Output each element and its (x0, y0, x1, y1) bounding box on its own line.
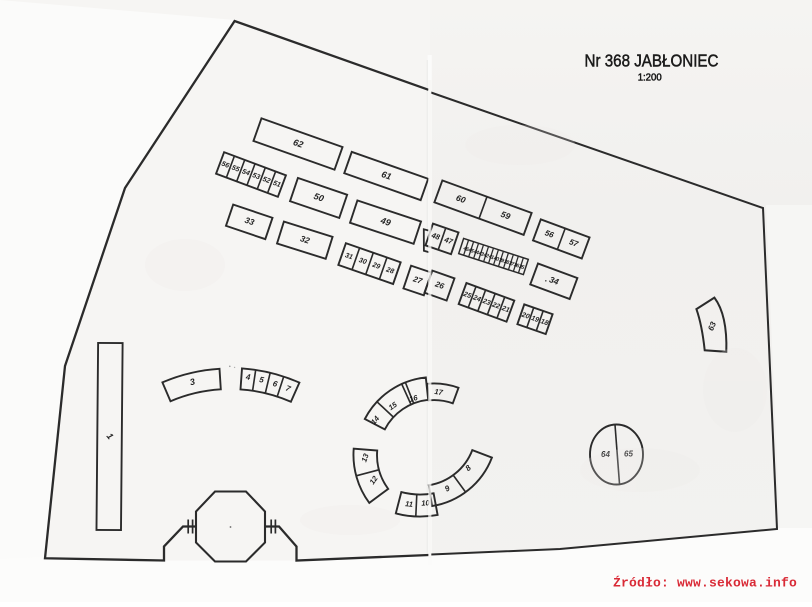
svg-text:1:200: 1:200 (638, 73, 662, 84)
svg-text:11: 11 (405, 499, 414, 509)
svg-text:Nr 368 JABŁONIEC: Nr 368 JABŁONIEC (585, 51, 719, 71)
svg-text:Źródło: www.sekowa.info: Źródło: www.sekowa.info (613, 576, 797, 591)
